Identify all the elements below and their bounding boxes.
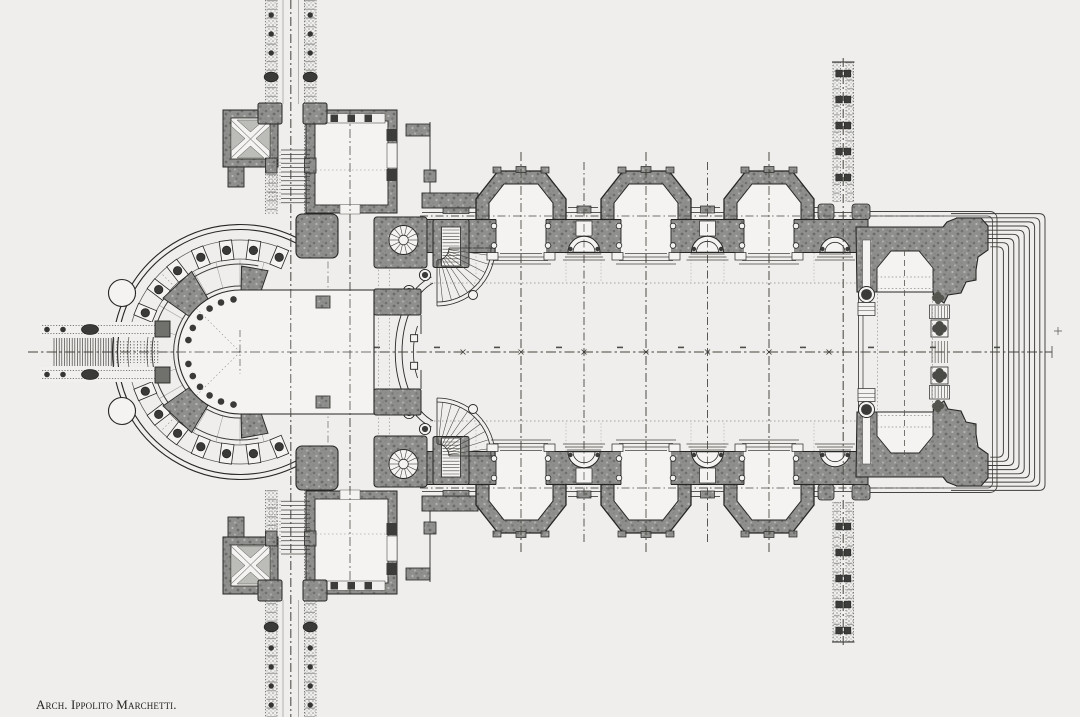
- svg-text:Arch. Ippolito Marchetti.: Arch. Ippolito Marchetti.: [36, 697, 177, 712]
